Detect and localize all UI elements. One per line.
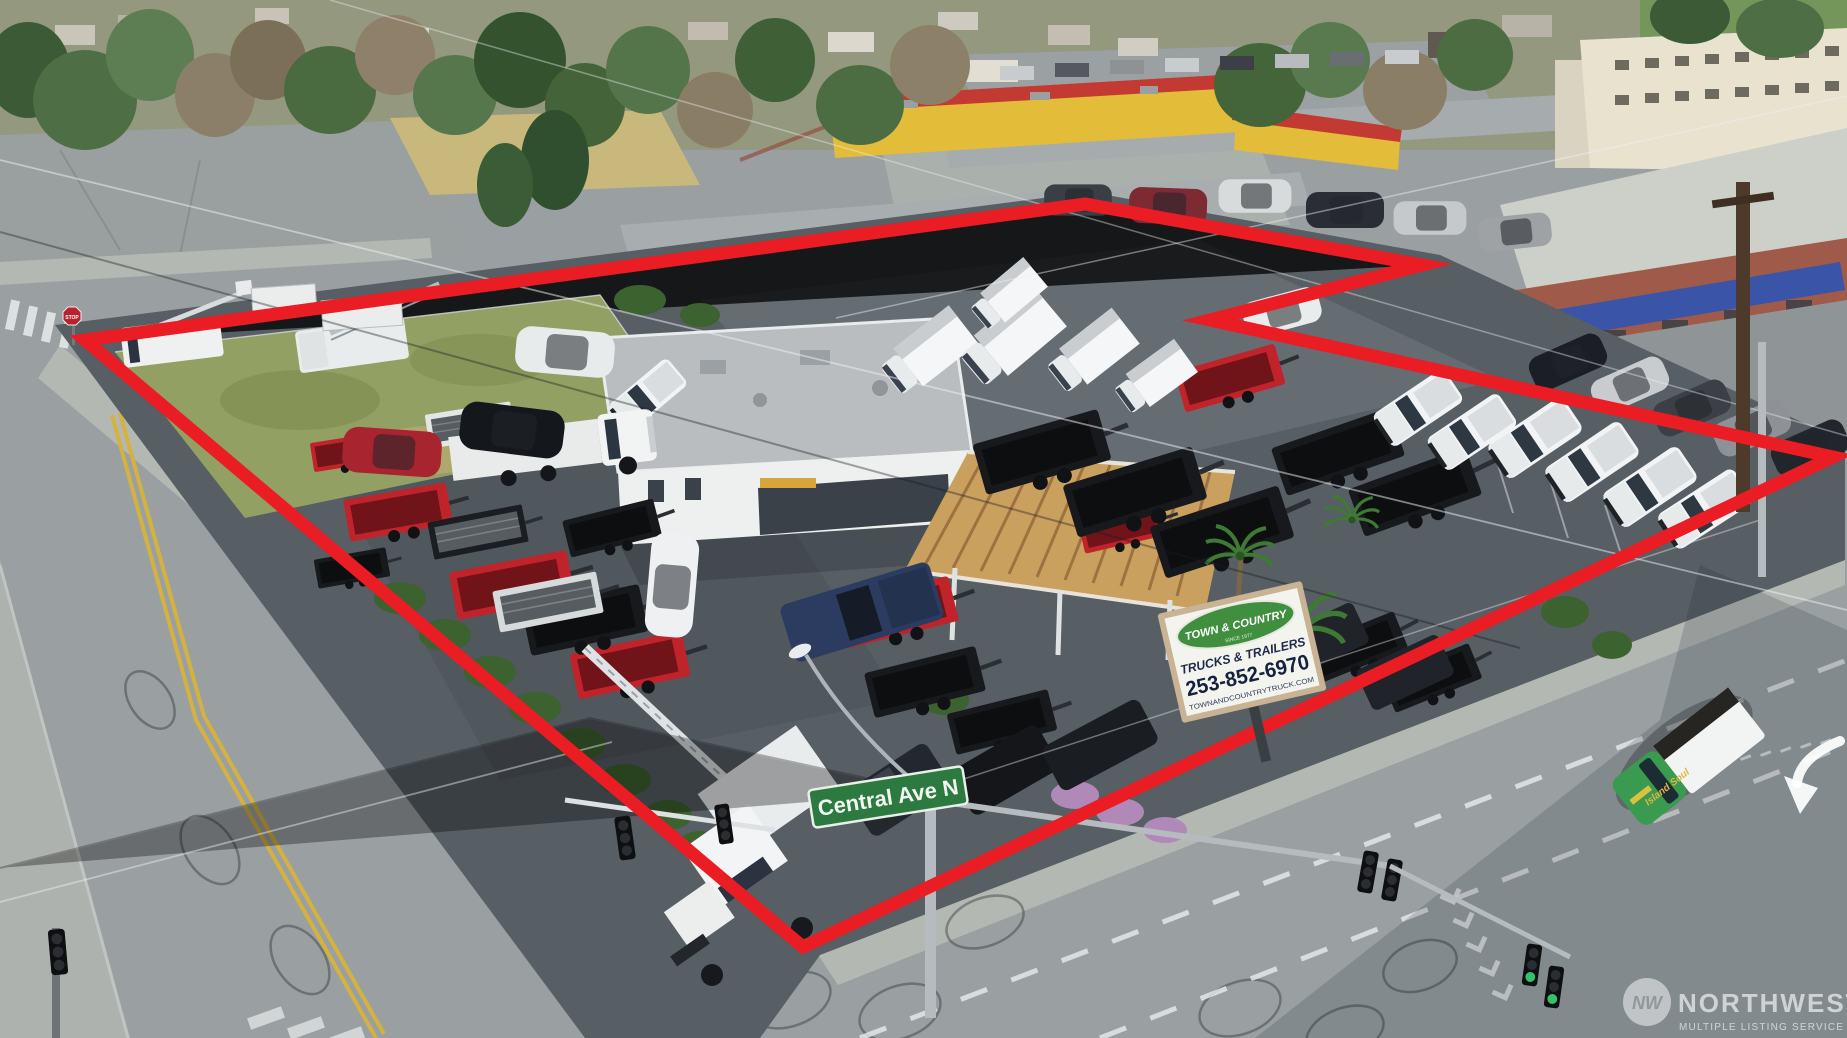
mls-logo-monogram: NW [1632,993,1664,1013]
stop-sign-label: STOP [65,315,79,321]
mls-watermark-tagline: MULTIPLE LISTING SERVICE [1679,1022,1844,1033]
signal-pole [925,778,936,1018]
white-suv-front [644,531,701,639]
aerial-photo: STOP Island Soul TOWN & COUNTRY SINCE 19… [0,0,1847,1038]
mls-watermark-name: NORTHWEST [1678,988,1847,1018]
white-suv [514,325,616,379]
red-car [341,426,443,478]
